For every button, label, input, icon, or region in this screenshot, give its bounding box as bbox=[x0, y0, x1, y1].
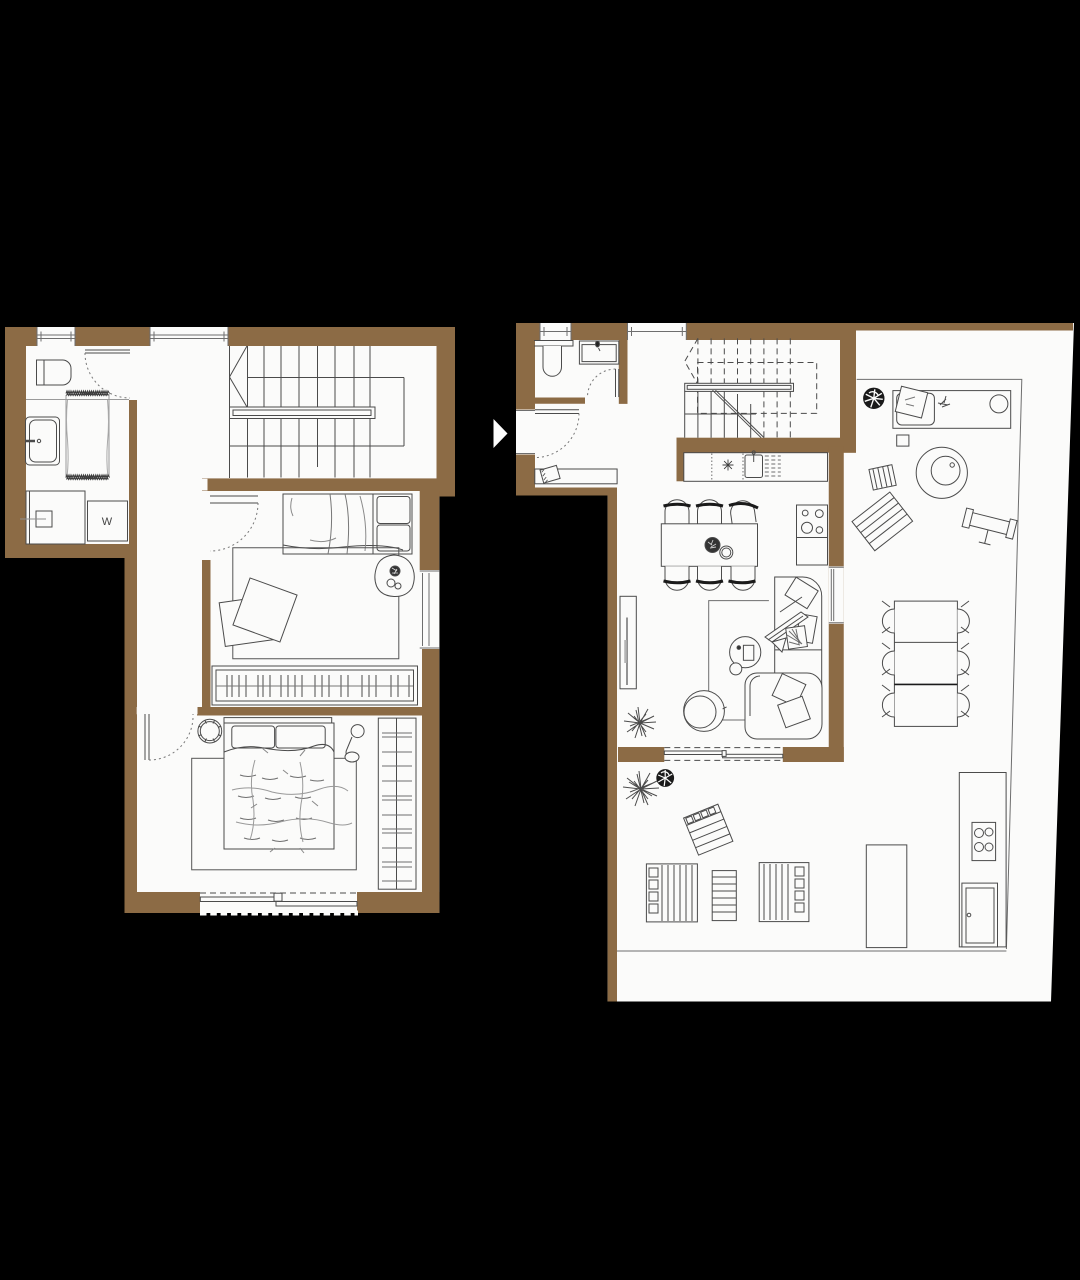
svg-text:W: W bbox=[102, 516, 113, 528]
